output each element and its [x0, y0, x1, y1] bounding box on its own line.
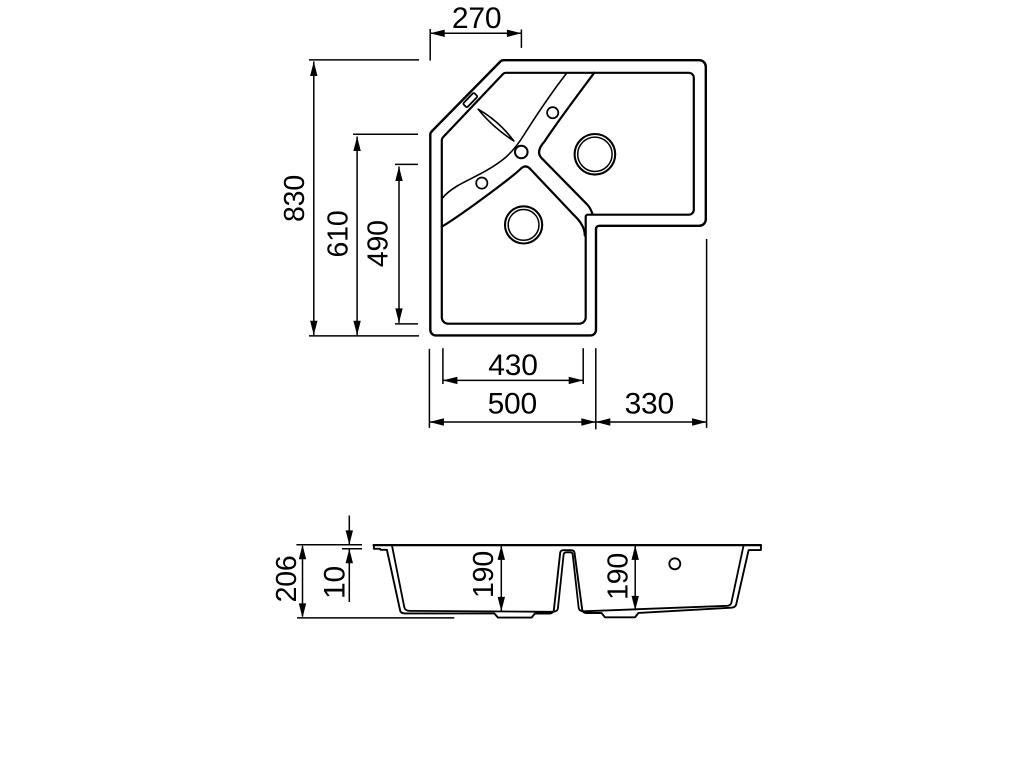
svg-text:610: 610 — [323, 211, 355, 258]
svg-text:500: 500 — [488, 387, 537, 420]
svg-text:190: 190 — [603, 553, 635, 600]
svg-text:430: 430 — [488, 349, 537, 382]
svg-text:10: 10 — [319, 566, 352, 599]
svg-text:490: 490 — [362, 220, 394, 267]
svg-text:830: 830 — [279, 175, 311, 222]
svg-text:270: 270 — [452, 2, 501, 35]
svg-text:206: 206 — [271, 555, 303, 602]
svg-text:330: 330 — [625, 387, 674, 420]
svg-text:190: 190 — [468, 551, 500, 598]
